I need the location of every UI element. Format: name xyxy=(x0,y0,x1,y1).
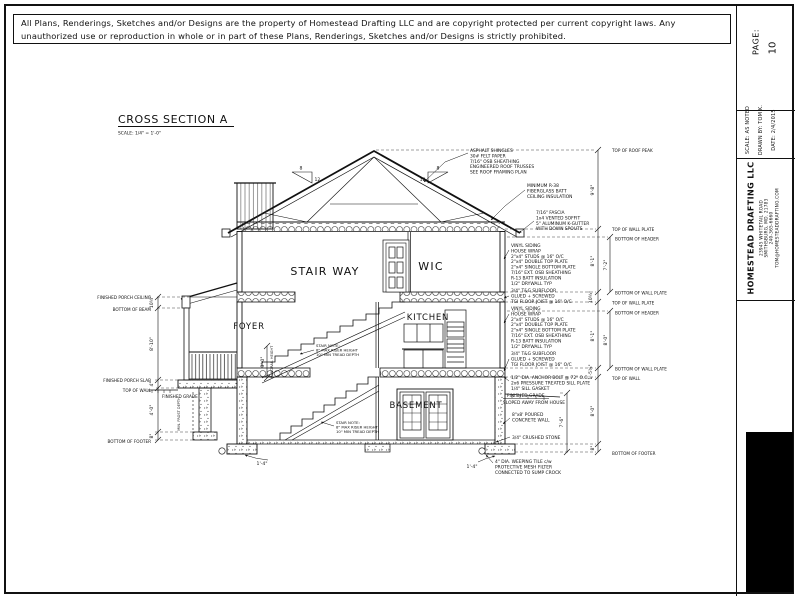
weeping-tile-left xyxy=(219,448,225,454)
drawing-title-group: CROSS SECTION A SCALE: 1/4" = 1'-0" xyxy=(118,113,234,137)
structure xyxy=(219,232,515,455)
left-dimensions: FINISHED PORCH CEILING BOTTOM OF BEAM FI… xyxy=(97,295,198,444)
callout-wall-second: VINYL SIDING HOUSE WRAP 2"x4" STUDS @ 16… xyxy=(511,243,576,287)
callout-line: 10" MIN TREAD DEPTH xyxy=(316,352,359,357)
callout-eave: 7/16" FASCIA 1x4 VENTED SOFFIT 5" ALUMIN… xyxy=(536,210,589,232)
ceiling-insulation xyxy=(242,223,500,231)
level-porch-ceiling: FINISHED PORCH CEILING xyxy=(97,295,151,300)
dim-first-header: 8'-0" xyxy=(603,335,609,346)
callout-line: MINIMUM R-38 xyxy=(527,183,559,189)
level-roof-peak: TOP OF ROOF PEAK xyxy=(611,148,653,153)
callout-line: CONCRETE WALL xyxy=(512,417,550,423)
callout-line: 7/16" EXT. OSB SHEATHING xyxy=(511,270,572,276)
level-porch-slab: FINISHED PORCH SLAB xyxy=(103,378,151,383)
callout-line: 1/2" DRYWALL TYP xyxy=(511,281,552,287)
weeping-tile-right xyxy=(479,448,485,454)
callout-roof: ASPHALT SHINGLES 30# FELT PAPER 7/16" OS… xyxy=(470,148,534,176)
pitch-rise-left: 8 xyxy=(300,166,303,172)
truss-webs xyxy=(264,157,484,222)
dim-footer-depth-right: 8" xyxy=(590,445,596,450)
callout-foundation-wall: 8"x8' POURED CONCRETE WALL xyxy=(512,412,550,423)
dim-first-floor-height: 8'-1" xyxy=(590,331,596,342)
callout-line: TGI FLOOR JOIST @ 16" O/C xyxy=(510,299,572,305)
stair-note-basement: STAIR NOTE: 8" MAX RISER HEIGHT 10" MIN … xyxy=(336,420,379,434)
porch-slab xyxy=(178,380,237,388)
callout-line: SEE ROOF FRAMING PLAN xyxy=(470,170,527,176)
drawing-scale-note: SCALE: 1/4" = 1'-0" xyxy=(118,131,161,137)
callout-line: HOUSE WRAP xyxy=(511,248,541,254)
callout-line: 5" ALUMINUM K-GUTTER xyxy=(536,221,589,227)
callout-line: CEILING INSULATION xyxy=(527,194,572,200)
label-min-frost-depth: MIN. FROST DEPTH xyxy=(177,397,181,431)
callout-line: 10" MIN TREAD DEPTH xyxy=(336,429,379,434)
callout-line: 7/16" FASCIA xyxy=(536,210,565,216)
callout-line: SLOPED AWAY FROM HOUSE xyxy=(503,400,565,406)
dim-footer-width-left: 1'-4" xyxy=(257,461,268,467)
room-wic: WIC xyxy=(418,260,443,273)
dim-porch-height: 8'-10" xyxy=(149,337,155,351)
main-stairs xyxy=(262,302,405,368)
roof-pitch-marker-right: 8 12 xyxy=(420,166,448,184)
callout-sill: 1/2" DIA. ANCHOR BOLT @ 72" O.C. 2x6 PRE… xyxy=(511,375,590,392)
callout-line: 4" DIA. WEEPING TILE c/w xyxy=(495,459,552,465)
dim-below-grade: 7'-6" xyxy=(559,417,565,428)
gable-wall xyxy=(234,183,276,229)
porch-post xyxy=(184,308,189,380)
callout-line: VINYL SIDING xyxy=(511,306,541,312)
callout-line: GLUED + SCREWED xyxy=(511,356,555,362)
callout-grade-right: FINISHED GRADE SLOPED AWAY FROM HOUSE xyxy=(503,393,565,406)
callout-line: 1/2" DRYWALL TYP xyxy=(511,344,552,350)
callout-line: 3/4" T&G SUBFLOOR xyxy=(511,351,556,357)
callout-line: 2"x4" STUDS @ 16" O/C xyxy=(511,317,564,323)
callout-floor-second: 3/4" T&G SUBFLOOR GLUED + SCREWED TGI FL… xyxy=(510,288,572,305)
level-top-wall: TOP OF WALL xyxy=(611,376,641,381)
callout-line: ASPHALT SHINGLES xyxy=(470,148,513,154)
callout-line: WITH DOWN SPOUTS xyxy=(536,226,583,232)
level-bottom-beam: BOTTOM OF BEAM xyxy=(113,307,152,312)
callout-line: 2"x4" SINGLE BOTTOM PLATE xyxy=(511,265,576,271)
porch-footer xyxy=(193,432,217,440)
porch-railing xyxy=(190,354,236,379)
callout-crushed-stone: 3/4" CRUSHED STONE xyxy=(512,435,561,441)
stair-note-main: STAIR NOTE: 8" MAX RISER HEIGHT 10" MIN … xyxy=(316,343,359,357)
dim-second-header: 7'-2" xyxy=(603,260,609,271)
callout-line: 3/4" T&G SUBFLOOR xyxy=(511,288,556,294)
callout-line: HOUSE WRAP xyxy=(511,311,541,317)
dim-basement-height: 8'-0" xyxy=(590,406,596,417)
first-floor-band xyxy=(237,368,505,377)
callout-line: FIBERGLASS BATT xyxy=(527,188,567,194)
dim-second-floor-depth: 10¾" xyxy=(588,291,594,303)
callout-line: 7/16" OSB SHEATHING xyxy=(470,159,520,165)
callout-floor-first: 3/4" T&G SUBFLOOR GLUED + SCREWED TGI FL… xyxy=(510,351,572,368)
callout-line: CONNECTED TO SUMP CROCK xyxy=(495,470,561,476)
callout-line: 2"x4" STUDS @ 16" O/C xyxy=(511,254,564,260)
callout-line: 2"x4" DOUBLE TOP PLATE xyxy=(511,259,568,265)
cross-section-drawing: CROSS SECTION A SCALE: 1/4" = 1'-0" xyxy=(0,0,800,600)
pitch-run-left: 12 xyxy=(315,177,321,183)
dim-footer-width-right: 1'-4" xyxy=(467,464,478,470)
callout-weeping-tile: 4" DIA. WEEPING TILE c/w PROTECTIVE MESH… xyxy=(495,459,561,476)
callout-line: VINYL SIDING xyxy=(511,243,541,249)
drawing-sheet: All Plans, Renderings, Sketches and/or D… xyxy=(0,0,800,600)
label-handrail-height: HANDRAIL HEIGHT xyxy=(270,345,274,378)
wic-door xyxy=(383,240,409,292)
center-pad xyxy=(365,444,390,452)
callout-line: 2"x4" DOUBLE TOP PLATE xyxy=(511,322,568,328)
porch-beam xyxy=(182,296,190,308)
callout-ceiling-insulation: MINIMUM R-38 FIBERGLASS BATT CEILING INS… xyxy=(527,183,572,200)
callout-line: 30# FELT PAPER xyxy=(470,153,506,159)
dim-handrail: 3'-0" xyxy=(260,357,266,368)
callout-line: 1/4" SILL GASKET xyxy=(511,386,550,392)
level-bottom-plate-1: BOTTOM OF WALL PLATE xyxy=(615,367,667,372)
second-floor-band xyxy=(237,292,505,302)
callout-line: GLUED + SCREWED xyxy=(511,293,555,299)
level-bottom-plate-2: BOTTOM OF WALL PLATE xyxy=(615,291,667,296)
callout-line: TGI FLOOR JOIST @ 16" O/C xyxy=(510,362,572,368)
level-top-plate-1: TOP OF WALL PLATE xyxy=(611,301,655,306)
callout-line: 1x4 VENTED SOFFIT xyxy=(536,215,580,221)
level-top-wall-left: TOP OF WALL xyxy=(122,388,152,393)
level-bottom-footer-left: BOTTOM OF FOOTER xyxy=(107,439,151,444)
footer-right xyxy=(485,444,515,454)
room-stairway: STAIR WAY xyxy=(290,265,359,278)
callout-line: PROTECTIVE MESH FILTER xyxy=(495,464,552,470)
dim-first-floor-depth: 1'-5¾" xyxy=(588,364,594,379)
pitch-run-right: 12 xyxy=(420,177,426,183)
callout-line: FINISHED GRADE xyxy=(507,393,545,399)
level-bottom-footer-right: BOTTOM OF FOOTER xyxy=(612,451,656,456)
callout-line: 8"x8' POURED xyxy=(512,412,544,418)
callout-line: 1/2" DIA. ANCHOR BOLT @ 72" O.C. xyxy=(511,375,589,381)
level-bottom-header-2: BOTTOM OF HEADER xyxy=(615,237,659,242)
level-top-plate-2: TOP OF WALL PLATE xyxy=(611,227,655,232)
porch-pier xyxy=(199,388,211,432)
basement-door xyxy=(397,389,453,440)
dim-footer-depth-left: 8" xyxy=(149,433,155,438)
callout-line: 2"x4" SINGLE BOTTOM PLATE xyxy=(511,328,576,334)
callout-line: ENGINEERED ROOF TRUSSES xyxy=(470,164,534,170)
basement-slab xyxy=(247,440,495,444)
foundation xyxy=(219,377,515,454)
drawing-title: CROSS SECTION A xyxy=(118,113,228,126)
dim-slab-depth: 4" xyxy=(149,381,155,386)
callout-line: R-13 BATT INSULATION xyxy=(511,275,561,281)
callout-wall-first: VINYL SIDING HOUSE WRAP 2"x4" STUDS @ 16… xyxy=(511,306,576,350)
level-bottom-header-1: BOTTOM OF HEADER xyxy=(615,311,659,316)
callout-line: 2x6 PRESSURE TREATED SILL PLATE xyxy=(511,380,590,386)
room-kitchen: KITCHEN xyxy=(407,313,449,323)
dim-second-floor-height: 8'-1" xyxy=(590,256,596,267)
callout-line: 7/16" EXT. OSB SHEATHING xyxy=(511,333,572,339)
roof-pitch-marker-left: 8 12 xyxy=(292,166,320,184)
dim-peak-to-plate: 9'-8" xyxy=(590,185,596,196)
dim-frost-depth: 4'-0" xyxy=(149,405,155,416)
footer-left xyxy=(227,444,257,454)
room-foyer: FOYER xyxy=(233,322,265,332)
room-basement: BASEMENT xyxy=(389,401,442,411)
callout-line: R-13 BATT INSULATION xyxy=(511,338,561,344)
dim-beam-depth: 10¾" xyxy=(149,296,155,308)
